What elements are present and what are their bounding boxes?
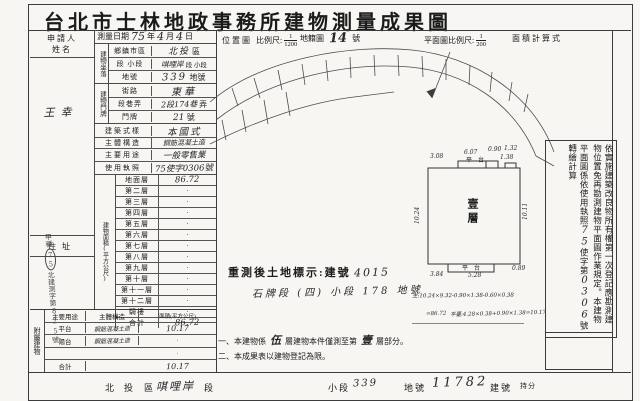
doorplate-block: 建物門牌 街路 東華 段巷弄 2段174巷 弄: [95, 84, 216, 124]
table-row: 第十層·: [116, 274, 216, 285]
calc-underline: [412, 323, 524, 324]
annex-area: 10.17: [166, 324, 189, 334]
annex-col-structure: 主體構造: [86, 311, 139, 321]
applicant-name-value: 王幸: [43, 104, 80, 236]
doorno-label: 門牌: [109, 112, 152, 122]
side-note-box: 依實施建築改良物所有權第一次登記應勘測建 物位置免再勘測建物平面圖作業規定。本建…: [545, 140, 617, 338]
lot-value: 339: [162, 71, 187, 83]
survey-day-value: 4: [176, 30, 183, 43]
floor-value: ·: [159, 187, 216, 195]
footer-section-label: 段: [204, 381, 213, 394]
table-row: 主體構造 鋼筋混凝土造: [95, 138, 216, 149]
dim-bottom1: 3.84: [430, 271, 444, 278]
left-table-top: 申請人姓名 王幸 住址 測量日期 75 年 4 月 4 日 建物坐落: [30, 30, 216, 309]
footer-district-value: 北投: [105, 381, 143, 394]
side-note-col3-mid: 使字第: [579, 248, 589, 275]
footer-subsection-label: 小段: [328, 381, 350, 394]
floor-label: 第四層: [116, 208, 159, 218]
permit-label: 使用執照: [95, 163, 152, 173]
plan-platform-bottom-label: 平台: [462, 263, 486, 272]
table-row: 主要用途 一般零售業: [95, 149, 216, 162]
table-row: 第二層·: [116, 186, 216, 197]
floor-value: ·: [159, 242, 216, 250]
annex-total-label: 合計: [45, 361, 86, 371]
empty-side-box: [545, 332, 613, 370]
structure-value: 鋼筋混凝土造: [163, 137, 205, 148]
side-note-col1: 依實施建築改良物所有權第一次登記應勘測建: [603, 144, 614, 334]
street-label: 街路: [109, 86, 152, 96]
note-2: 二、本成果表以建物登記為限。: [218, 351, 330, 362]
table-row: ·: [45, 348, 216, 361]
side-note-col3-pre: 平面圖係依使用執照: [579, 144, 589, 225]
survey-year-value: 75: [131, 30, 145, 43]
note1-post: 層部分。: [376, 336, 408, 347]
calc-line1: 主:10.24×9.32-0.90×1.38-0.60×0.38: [412, 291, 514, 300]
table-row: 第五層·: [116, 219, 216, 230]
floor-label: 第九層: [116, 263, 159, 273]
table-row: 門牌 21 號: [109, 111, 216, 123]
table-row: 第六層·: [116, 230, 216, 241]
annex-total-value: 10.17: [166, 361, 189, 371]
stamp-suffix: 號: [51, 336, 59, 344]
lane-label: 段巷弄: [109, 99, 152, 109]
dim-bottom3: 0.89: [512, 265, 526, 272]
style-label: 建築式樣: [95, 126, 152, 136]
applicant-name-label-cell: 申請人姓名: [30, 30, 94, 58]
left-info-table: 申請人姓名 王幸 住址 測量日期 75 年 4 月 4 日 建物坐落: [30, 30, 217, 372]
calc-line3: 平臺:4.28×0.38+0.90×1.38=10.17: [450, 308, 546, 319]
lane-value: 2段174巷: [161, 98, 198, 110]
detail-column: 測量日期 75 年 4 月 4 日 建物坐落 鄉鎮市區 北投 區: [95, 30, 216, 309]
table-row: 第三層·: [116, 197, 216, 208]
table-row: 段巷弄 2段174巷 弄: [109, 98, 216, 111]
table-row: 第九層·: [116, 263, 216, 274]
month-unit: 月: [166, 31, 174, 42]
section-value: 唭哩岸: [161, 58, 184, 70]
doorno-value: 21: [173, 112, 185, 122]
situs-group-label: 建物坐落: [95, 44, 109, 83]
floor-area-rows: 地面層86.72 第二層· 第三層· 第四層· 第五層· 第六層· 第七層· 第…: [116, 175, 216, 328]
applicant-name-label: 申請人姓名: [47, 33, 77, 55]
footer-strip: 北投 區 唭哩岸 段 小段 339 地號 11782 建號 持分: [28, 372, 631, 399]
dim-top1: 3.08: [430, 153, 444, 160]
survey-month-value: 4: [157, 30, 164, 43]
street-value: 東華: [171, 83, 197, 99]
table-row: 第四層·: [116, 208, 216, 219]
footer-district-label: 區: [144, 381, 153, 394]
note-1: 一、本建物係 伍 層建物本件僅測至第 壹 層部分。: [218, 332, 408, 348]
table-row: 地面層86.72: [116, 175, 216, 186]
floor-value: ·: [159, 253, 216, 261]
table-row: 第七層·: [116, 241, 216, 252]
footer-section-value: 唭哩岸: [156, 377, 195, 394]
structure-label: 主體構造: [95, 138, 152, 148]
area-calculation: 主:10.24×9.32-0.90×1.38-0.60×0.38 =86.72 …: [412, 284, 552, 324]
table-row: 街路 東華: [109, 84, 216, 98]
table-row: 陽台 鋼筋混凝土造 ·: [45, 335, 216, 348]
floor-label: 第七層: [116, 241, 159, 251]
note1-floor-count: 伍: [270, 332, 281, 348]
resurvey-heading-row: 重測後土地標示:建號 4015: [228, 264, 390, 280]
floor-label: 第十一層: [116, 285, 159, 295]
note1-pre: 一、本建物係: [218, 336, 266, 347]
situs-block: 建物坐落 鄉鎮市區 北投 區 段 小段 唭哩岸 段 小段: [95, 44, 216, 84]
floor-value: ·: [159, 220, 216, 228]
table-row: 使用執照 75使字0306號: [95, 162, 216, 175]
section-label: 段 小段: [109, 59, 152, 69]
floor-value: ·: [159, 209, 216, 217]
dim-bottom2: 5.28: [468, 272, 482, 279]
footer-lot-label: 地號: [404, 381, 426, 394]
floor-area-block: 建物面積(平方公尺) 地面層86.72 第二層· 第三層· 第四層· 第五層· …: [95, 175, 216, 328]
floor-label: 第十層: [116, 274, 159, 284]
footer-building-no-value: 11782: [432, 374, 489, 390]
stamp-prefix: 甲種: [44, 233, 53, 248]
dim-top5: 1.38: [500, 154, 514, 161]
floor-value: ·: [159, 198, 216, 206]
use-value: 一般零售業: [163, 148, 206, 161]
table-row: 地號 339 地號: [109, 71, 216, 83]
side-note-col3: 平面圖係依使用執照75使字第0306號轉繪計算: [566, 144, 591, 334]
applicant-name-cell: 王幸: [30, 58, 94, 236]
annex-area: ·: [139, 350, 216, 357]
table-row: 建築式樣 本國式: [95, 124, 216, 138]
situs-rows: 鄉鎮市區 北投 區 段 小段 唭哩岸 段 小段: [109, 44, 216, 83]
annex-structure: 鋼筋混凝土造: [94, 323, 130, 333]
floor-label: 第六層: [116, 230, 159, 240]
district-label: 鄉鎮市區: [109, 46, 152, 56]
side-note-permit-year: 75: [578, 225, 592, 248]
table-row: 段 小段 唭哩岸 段 小段: [109, 58, 216, 71]
side-note-col2: 物位置免再勘測建物平面圖作業規定。本建物: [591, 144, 602, 334]
plan-platform-top-label: 平台: [466, 155, 490, 164]
floor-value: 86.72: [175, 175, 200, 186]
dim-right: 10.11: [522, 203, 529, 220]
floor-label: 地面層: [116, 175, 159, 185]
use-label: 主要用途: [95, 150, 152, 160]
style-value: 本國式: [167, 123, 202, 138]
floor-value: ·: [159, 286, 216, 294]
dim-top3: 0.90: [488, 146, 502, 153]
floor-area-group-label: 建物面積(平方公尺): [95, 175, 116, 328]
floor-label: 第二層: [116, 186, 159, 196]
footer-lot-value: 339: [353, 378, 378, 390]
footer-share-label: 持分: [520, 381, 536, 391]
annex-structure: 鋼筋混凝土造: [94, 336, 130, 346]
day-unit: 日: [185, 31, 193, 42]
dim-left: 10.24: [414, 207, 421, 224]
table-row: 鄉鎮市區 北投 區: [109, 44, 216, 58]
floor-label: 第五層: [116, 219, 159, 229]
floor-label: 第十二層: [116, 296, 159, 306]
resurvey-building-no: 4015: [354, 266, 390, 280]
table-row: 第十一層·: [116, 285, 216, 296]
resurvey-heading: 重測後土地標示:建號: [228, 264, 351, 280]
district-suffix: 區: [192, 47, 200, 56]
note1-measured-floor: 壹: [361, 332, 372, 348]
table-row: 合計 10.17: [45, 360, 216, 372]
lot-label: 地號: [109, 72, 152, 82]
year-unit: 年: [147, 31, 155, 42]
dim-top4: 1.32: [504, 145, 518, 152]
floor-label: 第三層: [116, 197, 159, 207]
floor-label: 第八層: [116, 252, 159, 262]
table-row: 第十二層·: [116, 296, 216, 307]
annex-area: ·: [139, 337, 216, 344]
doorno-suffix: 號: [187, 113, 195, 122]
footer-building-no-label: 建號: [490, 381, 512, 394]
survey-date-label: 測量日期: [97, 31, 129, 42]
floor-value: ·: [159, 275, 216, 283]
side-note-permit-number: 0306: [578, 275, 592, 321]
calc-line2: =86.72: [426, 311, 447, 318]
doorplate-rows: 街路 東華 段巷弄 2段174巷 弄 門牌: [109, 84, 216, 123]
survey-date-row: 測量日期 75 年 4 月 4 日: [95, 30, 216, 44]
table-row: 第八層·: [116, 252, 216, 263]
floor-value: ·: [159, 297, 216, 305]
doorplate-group-label: 建物門牌: [95, 84, 109, 123]
note1-mid: 層建物本件僅測至第: [285, 336, 357, 347]
district-value: 北投: [168, 44, 190, 58]
floor-value: ·: [159, 264, 216, 272]
plan-floor-label: 壹層: [464, 198, 480, 226]
floor-value: ·: [159, 231, 216, 239]
